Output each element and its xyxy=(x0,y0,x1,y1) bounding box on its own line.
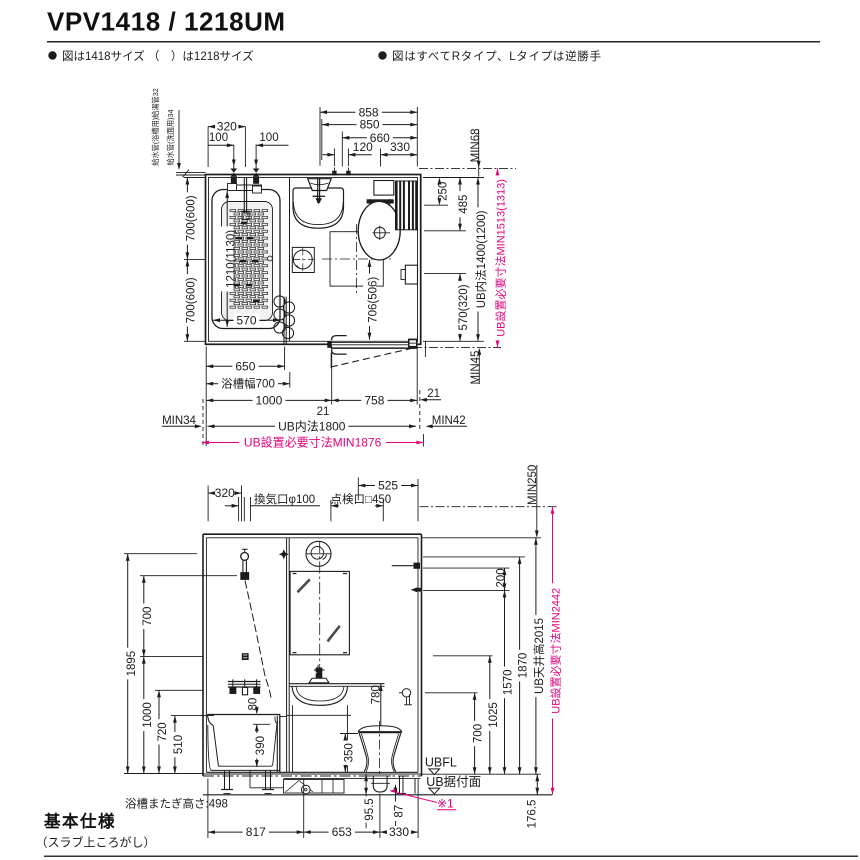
svg-text:700(600): 700(600) xyxy=(185,277,197,323)
svg-text:UB設置必要寸法MIN1513(1313): UB設置必要寸法MIN1513(1313) xyxy=(493,179,507,337)
svg-text:330: 330 xyxy=(389,825,409,839)
svg-text:1210(1130): 1210(1130) xyxy=(225,230,237,288)
svg-text:758: 758 xyxy=(364,394,384,408)
svg-text:817: 817 xyxy=(246,825,266,839)
svg-text:780: 780 xyxy=(371,685,383,704)
svg-text:UB設置必要寸法MIN2442: UB設置必要寸法MIN2442 xyxy=(548,588,562,714)
svg-text:21: 21 xyxy=(427,388,440,400)
svg-text:MIN45: MIN45 xyxy=(470,351,482,385)
svg-text:UB天井高2015: UB天井高2015 xyxy=(532,618,546,694)
svg-text:1895: 1895 xyxy=(126,651,138,677)
svg-text:570(320): 570(320) xyxy=(458,284,470,330)
svg-text:図は1418サイズ （ ）は1218サイズ: 図は1418サイズ （ ）は1218サイズ xyxy=(62,49,254,63)
svg-text:510: 510 xyxy=(173,735,185,754)
svg-text:21: 21 xyxy=(317,406,330,418)
svg-text:390: 390 xyxy=(255,736,267,755)
svg-text:（スラブ上ころがし）: （スラブ上ころがし） xyxy=(36,835,156,850)
svg-text:1870: 1870 xyxy=(518,653,530,679)
svg-text:200: 200 xyxy=(496,568,508,587)
svg-text:UBFL: UBFL xyxy=(425,756,457,770)
svg-text:1570: 1570 xyxy=(503,670,515,696)
svg-text:基本仕様: 基本仕様 xyxy=(44,811,116,831)
svg-text:給水管(浴槽用)給湯管32: 給水管(浴槽用)給湯管32 xyxy=(151,88,160,165)
svg-text:浴槽またぎ高さ:498: 浴槽またぎ高さ:498 xyxy=(125,796,228,810)
svg-text:100: 100 xyxy=(209,132,228,144)
svg-text:250: 250 xyxy=(437,182,449,201)
svg-text:176.5: 176.5 xyxy=(527,800,539,829)
svg-text:1000: 1000 xyxy=(142,702,154,728)
svg-text:UB据付面: UB据付面 xyxy=(426,775,481,789)
svg-text:700(600): 700(600) xyxy=(185,195,197,241)
svg-text:MIN68: MIN68 xyxy=(470,128,482,162)
svg-text:MIN42: MIN42 xyxy=(432,415,466,427)
svg-text:653: 653 xyxy=(332,825,352,839)
svg-text:UB内法1800: UB内法1800 xyxy=(278,419,346,433)
svg-text:330: 330 xyxy=(390,140,410,154)
svg-text:※1: ※1 xyxy=(437,797,454,811)
svg-text:浴槽幅700: 浴槽幅700 xyxy=(221,378,275,391)
svg-text:850: 850 xyxy=(360,118,380,132)
svg-text:700: 700 xyxy=(473,724,485,743)
svg-text:VPV1418 / 1218UM: VPV1418 / 1218UM xyxy=(47,7,286,37)
svg-text:570: 570 xyxy=(236,313,256,327)
svg-text:485: 485 xyxy=(458,195,470,214)
svg-text:720: 720 xyxy=(157,722,169,741)
svg-text:706(506): 706(506) xyxy=(368,277,380,323)
svg-text:MIN250: MIN250 xyxy=(527,465,539,505)
svg-text:給水管(洗面用)34: 給水管(洗面用)34 xyxy=(166,110,175,166)
svg-text:120: 120 xyxy=(353,140,373,154)
svg-text:650: 650 xyxy=(235,359,255,373)
svg-text:1025: 1025 xyxy=(488,702,500,728)
svg-text:MIN34: MIN34 xyxy=(162,415,196,427)
svg-text:700: 700 xyxy=(142,607,154,626)
svg-text:換気口φ100: 換気口φ100 xyxy=(254,492,315,506)
svg-text:95.5: 95.5 xyxy=(364,798,376,820)
svg-text:UB内法1400(1200): UB内法1400(1200) xyxy=(474,210,488,308)
svg-text:525: 525 xyxy=(378,479,398,493)
svg-text:点検口□450: 点検口□450 xyxy=(331,492,392,506)
svg-text:UB設置必要寸法MIN1876: UB設置必要寸法MIN1876 xyxy=(244,435,382,450)
svg-text:図はすべてRタイプ、Lタイプは逆勝手: 図はすべてRタイプ、Lタイプは逆勝手 xyxy=(392,49,602,63)
svg-text:1000: 1000 xyxy=(256,394,283,408)
svg-text:87: 87 xyxy=(394,805,406,818)
svg-text:320: 320 xyxy=(215,486,235,500)
svg-text:350: 350 xyxy=(343,743,355,762)
svg-text:100: 100 xyxy=(259,132,278,144)
svg-text:660: 660 xyxy=(370,131,390,145)
